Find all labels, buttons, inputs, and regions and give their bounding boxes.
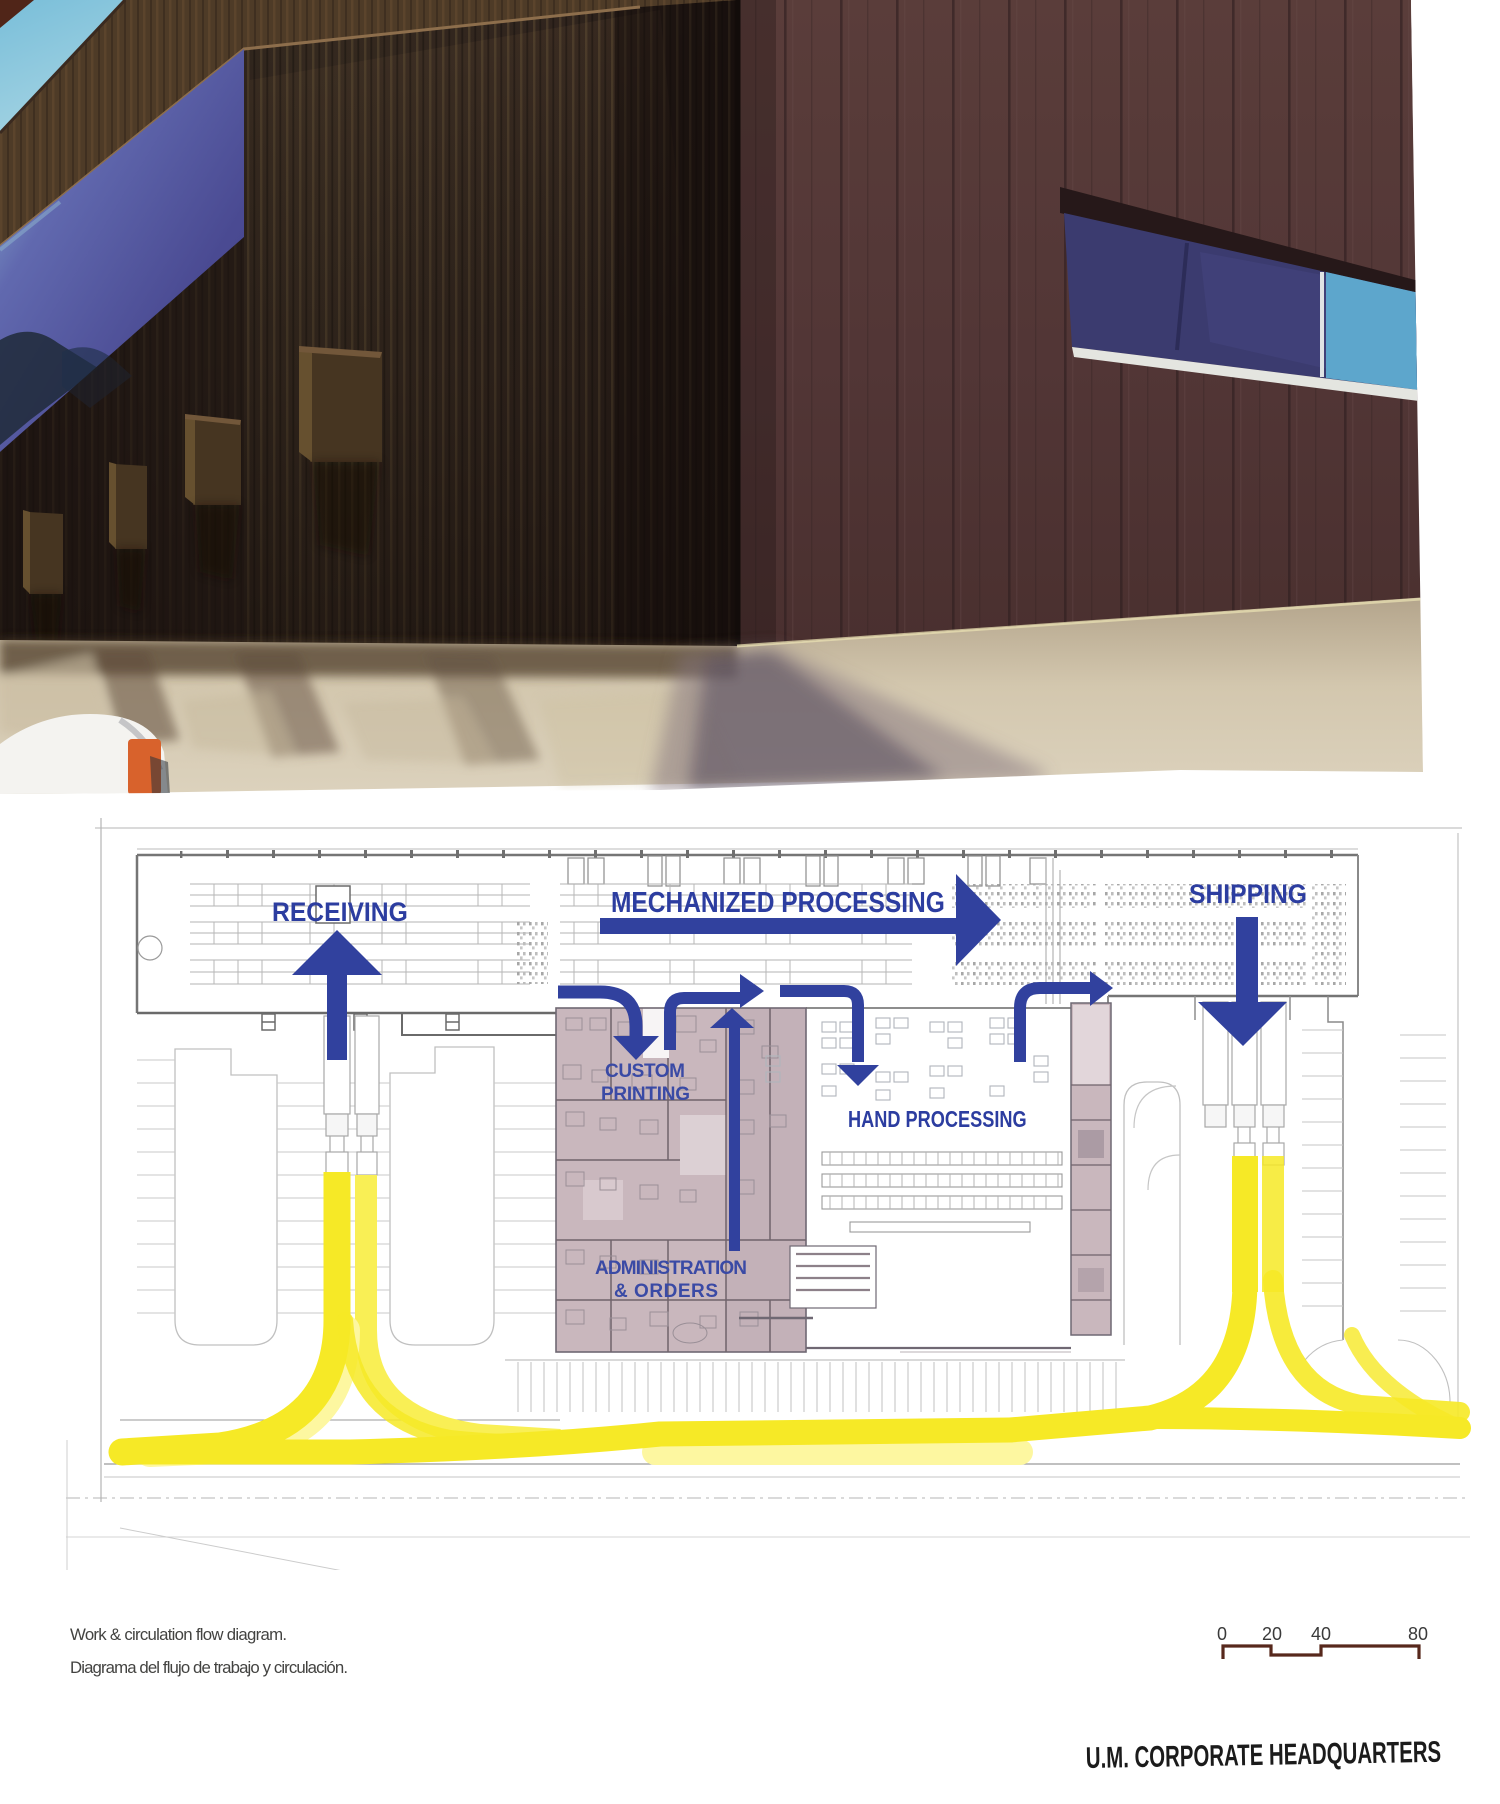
svg-text:0: 0 <box>1217 1624 1227 1644</box>
svg-text:ADMINISTRATION: ADMINISTRATION <box>595 1258 747 1279</box>
svg-text:PRINTING: PRINTING <box>601 1084 690 1105</box>
svg-text:U.M. CORPORATE HEADQUARTERS: U.M. CORPORATE HEADQUARTERS <box>1086 1736 1442 1775</box>
svg-text:Diagrama del flujo de trabajo: Diagrama del flujo de trabajo y circulac… <box>70 1658 348 1677</box>
svg-text:CUSTOM: CUSTOM <box>605 1061 685 1082</box>
svg-text:Work & circulation flow diagra: Work & circulation flow diagram. <box>70 1625 287 1644</box>
svg-text:20: 20 <box>1262 1624 1282 1644</box>
svg-text:HAND PROCESSING: HAND PROCESSING <box>848 1107 1027 1133</box>
svg-text:80: 80 <box>1408 1624 1428 1644</box>
svg-text:& ORDERS: & ORDERS <box>614 1281 718 1302</box>
svg-text:SHIPPING: SHIPPING <box>1189 880 1307 909</box>
svg-text:RECEIVING: RECEIVING <box>272 898 408 927</box>
svg-text:40: 40 <box>1311 1624 1331 1644</box>
svg-text:MECHANIZED PROCESSING: MECHANIZED PROCESSING <box>611 886 945 918</box>
